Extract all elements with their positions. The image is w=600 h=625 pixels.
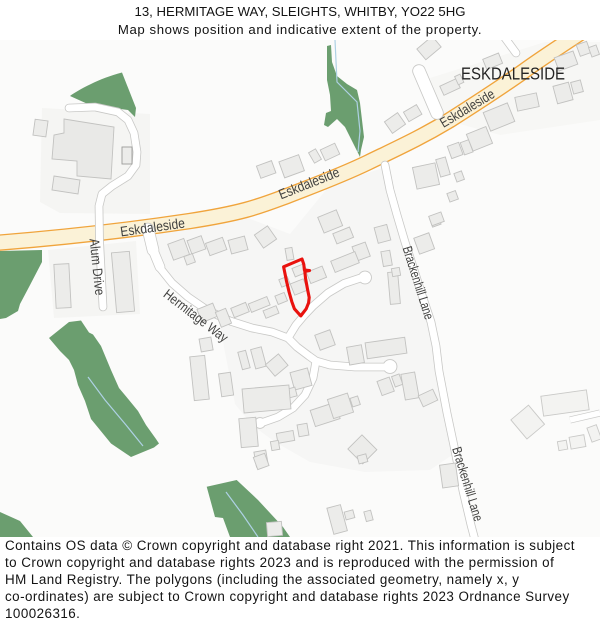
svg-text:ESKDALESIDE: ESKDALESIDE [461,64,565,84]
